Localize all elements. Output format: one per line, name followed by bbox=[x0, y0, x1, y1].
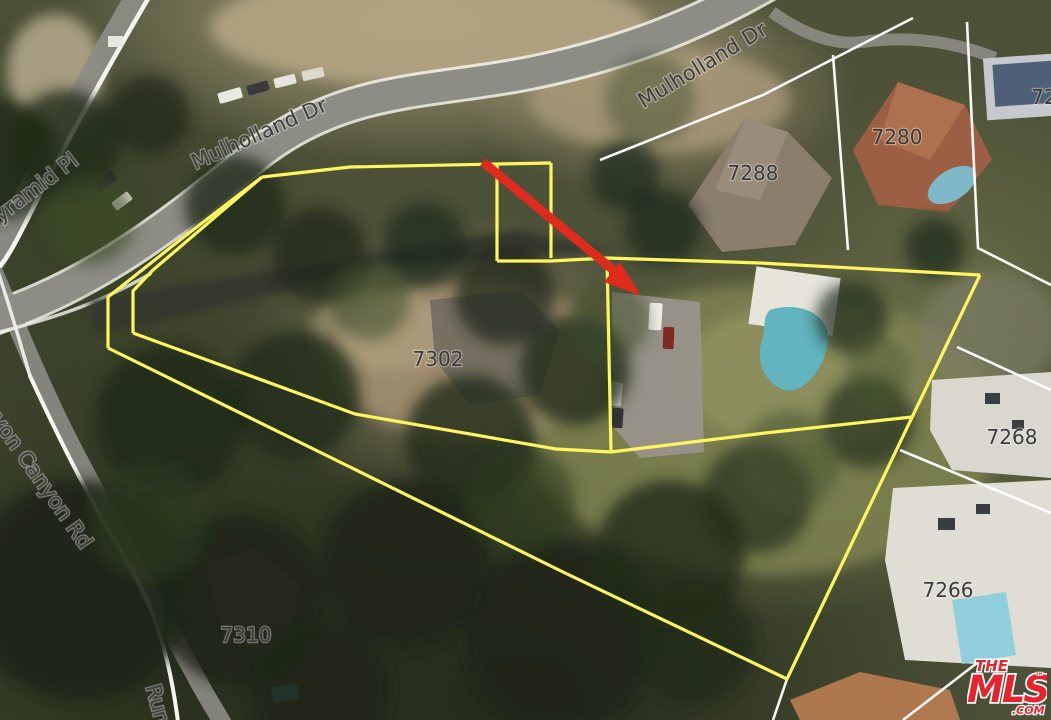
car bbox=[217, 87, 243, 104]
shed bbox=[108, 36, 123, 47]
tree-canopy bbox=[330, 260, 410, 340]
parcel-number-7302: 7302 bbox=[413, 347, 464, 371]
tree bbox=[110, 75, 190, 155]
tree bbox=[905, 218, 965, 278]
car bbox=[611, 408, 623, 429]
parcel-boundary-top bbox=[262, 163, 551, 177]
street-label-runyon: Run bbox=[141, 682, 175, 720]
tree-canopy bbox=[90, 460, 210, 580]
roof-unit bbox=[938, 518, 955, 530]
driveway-7288 bbox=[772, 12, 995, 58]
parcel-number-7268: 7268 bbox=[987, 425, 1038, 449]
parcel-number-7310: 7310 bbox=[221, 623, 272, 647]
car bbox=[246, 80, 270, 96]
car bbox=[273, 73, 297, 88]
roof-unit bbox=[976, 504, 990, 514]
truck bbox=[648, 303, 662, 331]
tree-canopy bbox=[45, 175, 135, 265]
tree-canopy bbox=[465, 445, 575, 555]
mls-logo-com: .COM bbox=[1012, 704, 1045, 717]
car bbox=[663, 327, 675, 349]
parcel-number-7280: 7280 bbox=[872, 125, 923, 149]
pool-7266 bbox=[952, 592, 1016, 664]
neighbor-parcel-line bbox=[833, 55, 848, 250]
mls-logo-tm: ™ bbox=[1035, 672, 1044, 682]
parcel-number-72-clipped: 72 bbox=[1031, 85, 1051, 109]
tree bbox=[625, 190, 701, 266]
satellite-map: Mulholland Dr Mulholland Dr yramid Pl yo… bbox=[0, 0, 1051, 720]
parcel-number-7288: 7288 bbox=[728, 161, 779, 185]
mls-logo: THE MLS ™ .COM bbox=[967, 655, 1047, 717]
parcel-number-7266: 7266 bbox=[923, 578, 974, 602]
tree-canopy bbox=[845, 335, 915, 405]
tree bbox=[320, 480, 490, 650]
tree bbox=[635, 585, 755, 705]
roof-unit bbox=[985, 393, 1000, 404]
neighbor-parcel-line bbox=[773, 679, 787, 720]
